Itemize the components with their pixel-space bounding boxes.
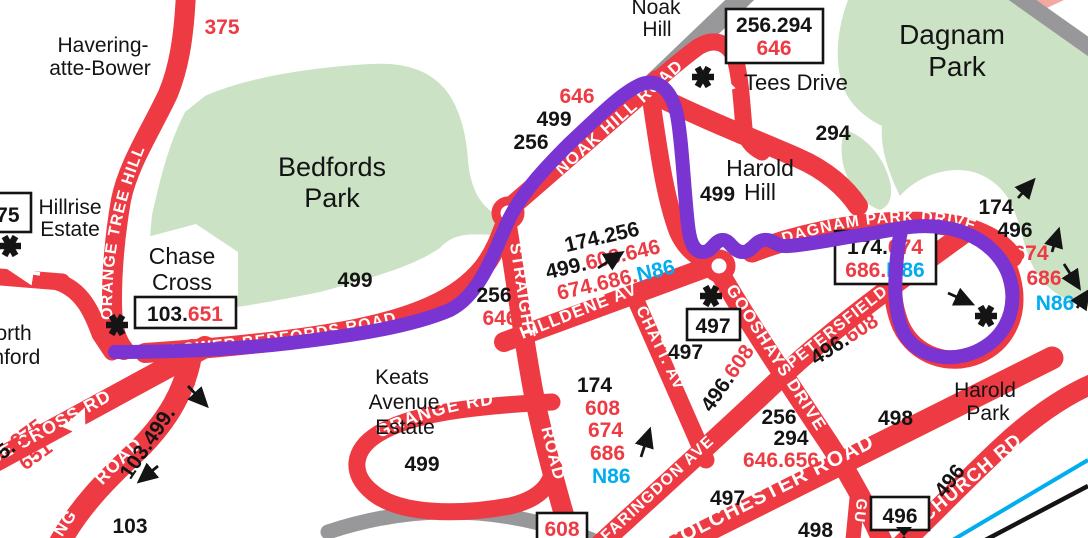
tees-box-line2: 646 <box>756 37 791 60</box>
church-rd-label: CHURCH RD <box>917 429 1027 526</box>
arrow-keats-up <box>641 432 649 457</box>
route-497-a: 497 <box>668 341 703 364</box>
arrow-tees-north <box>717 74 728 104</box>
harold-hill-line2: Hill <box>744 179 776 205</box>
keats-674: 674 <box>588 419 623 442</box>
svg-text:103.651: 103.651 <box>147 303 223 326</box>
stack-256: 256 <box>761 406 796 429</box>
route-256-straight: 256 <box>476 284 511 307</box>
bus-symbol-dagnam-loop <box>975 307 997 326</box>
stack-646-656: 646.656 <box>743 449 819 472</box>
hillrise-line1: Hillrise <box>39 196 102 219</box>
tees-drive-routebox: 256.294 646 <box>726 9 823 63</box>
svg-text:686.N86: 686.N86 <box>845 259 924 282</box>
bus-route-map: ORANGE TREE HILL LOWER BEDFORDS ROAD NOA… <box>0 0 1088 538</box>
havering-line1: Havering- <box>57 34 148 57</box>
harold-park-line1: Harold <box>954 379 1016 402</box>
dagnam-line2: Park <box>928 51 987 82</box>
route-294: 294 <box>815 122 850 145</box>
chase-line2: Cross <box>152 269 212 295</box>
harold-park-line2: Park <box>966 402 1010 425</box>
route-499-bedfords: 499 <box>337 269 372 292</box>
route-646-noak: 646 <box>559 85 594 108</box>
dagnam-line1: Dagnam <box>899 19 1005 50</box>
gubbins-label: GU <box>850 498 870 525</box>
east-n86: N86 <box>1036 292 1075 315</box>
keats-174: 174 <box>577 374 612 397</box>
svg-text:GU: GU <box>850 498 870 525</box>
bus-symbol-tees <box>692 68 714 87</box>
route-497-b: 497 <box>710 487 745 510</box>
route-646-straight: 646 <box>482 307 517 330</box>
north-romford-line1: North <box>0 322 32 345</box>
keats-route-stack: 174 608 674 686 N86 <box>577 374 649 488</box>
church-496-routebox: 496 <box>871 497 929 530</box>
route-499-noak: 499 <box>536 108 571 131</box>
hillrise-routebox: 375 <box>0 193 31 232</box>
havering-line2: atte-Bower <box>49 57 151 80</box>
chase-box-651: 651 <box>188 303 223 326</box>
tees-box-line1: 256.294 <box>736 14 812 37</box>
tees-drive-label: Tees Drive <box>744 70 848 95</box>
east-686: 686 <box>1026 267 1061 290</box>
route-256-noak: 256 <box>513 131 548 154</box>
chase-cross-routebox: 103.651 <box>135 297 236 328</box>
route-498-a: 498 <box>878 407 913 430</box>
svg-text:CHURCH RD: CHURCH RD <box>917 429 1027 526</box>
stack-294: 294 <box>773 427 808 450</box>
route-103: 103 <box>112 515 147 538</box>
dagnam-box-686: 686. <box>845 259 886 282</box>
arrow-loop-terminus <box>948 293 970 303</box>
roundabout-hilldene <box>707 254 731 278</box>
gooshays-routebox: 497 <box>687 309 740 340</box>
hillrise-line2: Estate <box>40 218 100 241</box>
bedfords-line1: Bedfords <box>278 152 386 182</box>
keats-line1: Keats <box>375 366 429 389</box>
box-496-text: 496 <box>882 505 917 528</box>
route-499-harold: 499 <box>700 183 735 206</box>
east-674: 674 <box>1013 242 1048 265</box>
box-497-text: 497 <box>695 315 730 338</box>
hillrise-box-375: 375 <box>0 204 20 227</box>
keats-line2: Avenue <box>369 391 440 414</box>
box-608-text: 608 <box>544 518 579 538</box>
keats-n86: N86 <box>592 465 631 488</box>
noak-line1: Noak <box>631 0 681 19</box>
keats-608: 608 <box>585 397 620 420</box>
route-499-keats: 499 <box>404 453 439 476</box>
route-375: 375 <box>204 16 239 39</box>
route-498-b: 498 <box>798 519 833 538</box>
keats-686: 686 <box>590 442 625 465</box>
bedfords-line2: Park <box>304 183 360 213</box>
bus-symbol-hillrise <box>0 237 21 256</box>
noak-line2: Hill <box>642 18 671 41</box>
east-174: 174 <box>978 196 1013 219</box>
keats-line3: Estate <box>375 416 435 439</box>
harold-hill-line1: Harold <box>726 155 794 181</box>
chase-box-103: 103. <box>147 303 188 326</box>
east-496: 496 <box>997 219 1032 242</box>
north-romford-line2: Romford <box>0 346 40 369</box>
chase-line1: Chase <box>149 243 215 269</box>
straight-608-routebox: 608 <box>537 513 587 538</box>
